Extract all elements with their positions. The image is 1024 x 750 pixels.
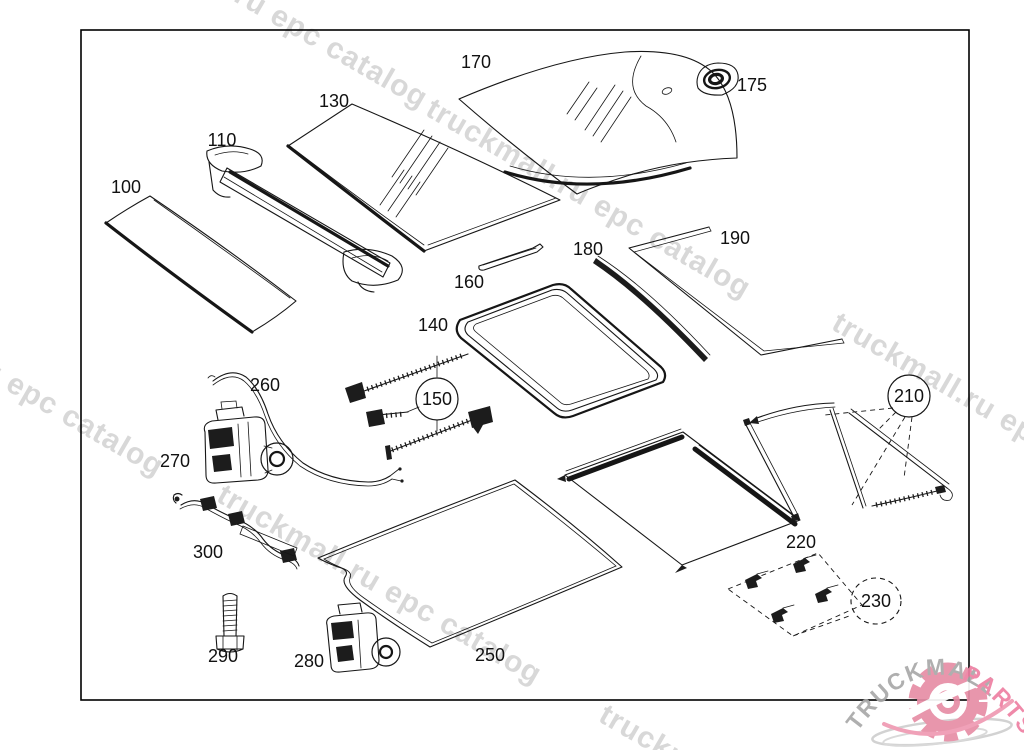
part-label-300: 300: [193, 542, 223, 562]
part-label-160: 160: [454, 272, 484, 292]
part-290-bolt: [216, 594, 244, 653]
part-label-150: 150: [422, 389, 452, 409]
part-label-180: 180: [573, 239, 603, 259]
part-label-230: 230: [861, 591, 891, 611]
part-170-glass-panel: [459, 51, 737, 194]
catalog-image: truckmall.ru epc catalog truckmall.ru ep…: [0, 0, 1024, 750]
part-160-strip: [479, 244, 543, 270]
part-label-280: 280: [294, 651, 324, 671]
part-140-seal-frame: [457, 284, 665, 417]
part-label-130: 130: [319, 91, 349, 111]
part-label-175: 175: [737, 75, 767, 95]
part-label-140: 140: [418, 315, 448, 335]
part-label-210: 210: [894, 386, 924, 406]
part-150-guide-rails: [345, 354, 493, 460]
truckmall-parts-logo: TRUCKMALL PARTS: [841, 653, 1024, 750]
part-280-motor: [327, 603, 400, 672]
part-250-liner-panel: [318, 480, 622, 647]
part-100-panel: [106, 196, 296, 332]
part-label-290: 290: [208, 646, 238, 666]
part-label-190: 190: [720, 228, 750, 248]
part-label-260: 260: [250, 375, 280, 395]
part-180-strip: [593, 256, 710, 362]
part-label-220: 220: [786, 532, 816, 552]
part-270-motor: [204, 401, 293, 483]
part-label-250: 250: [475, 645, 505, 665]
part-220-sunblind: [557, 429, 800, 573]
part-260-drive-cable: [208, 373, 404, 486]
part-label-170: 170: [461, 52, 491, 72]
parts-diagram: 100 110 130 140 150 160 170 175 180 190 …: [0, 0, 1024, 750]
part-label-270: 270: [160, 451, 190, 471]
part-label-110: 110: [208, 130, 237, 150]
part-label-100: 100: [111, 177, 141, 197]
part-110-wind-deflector: [207, 146, 403, 292]
